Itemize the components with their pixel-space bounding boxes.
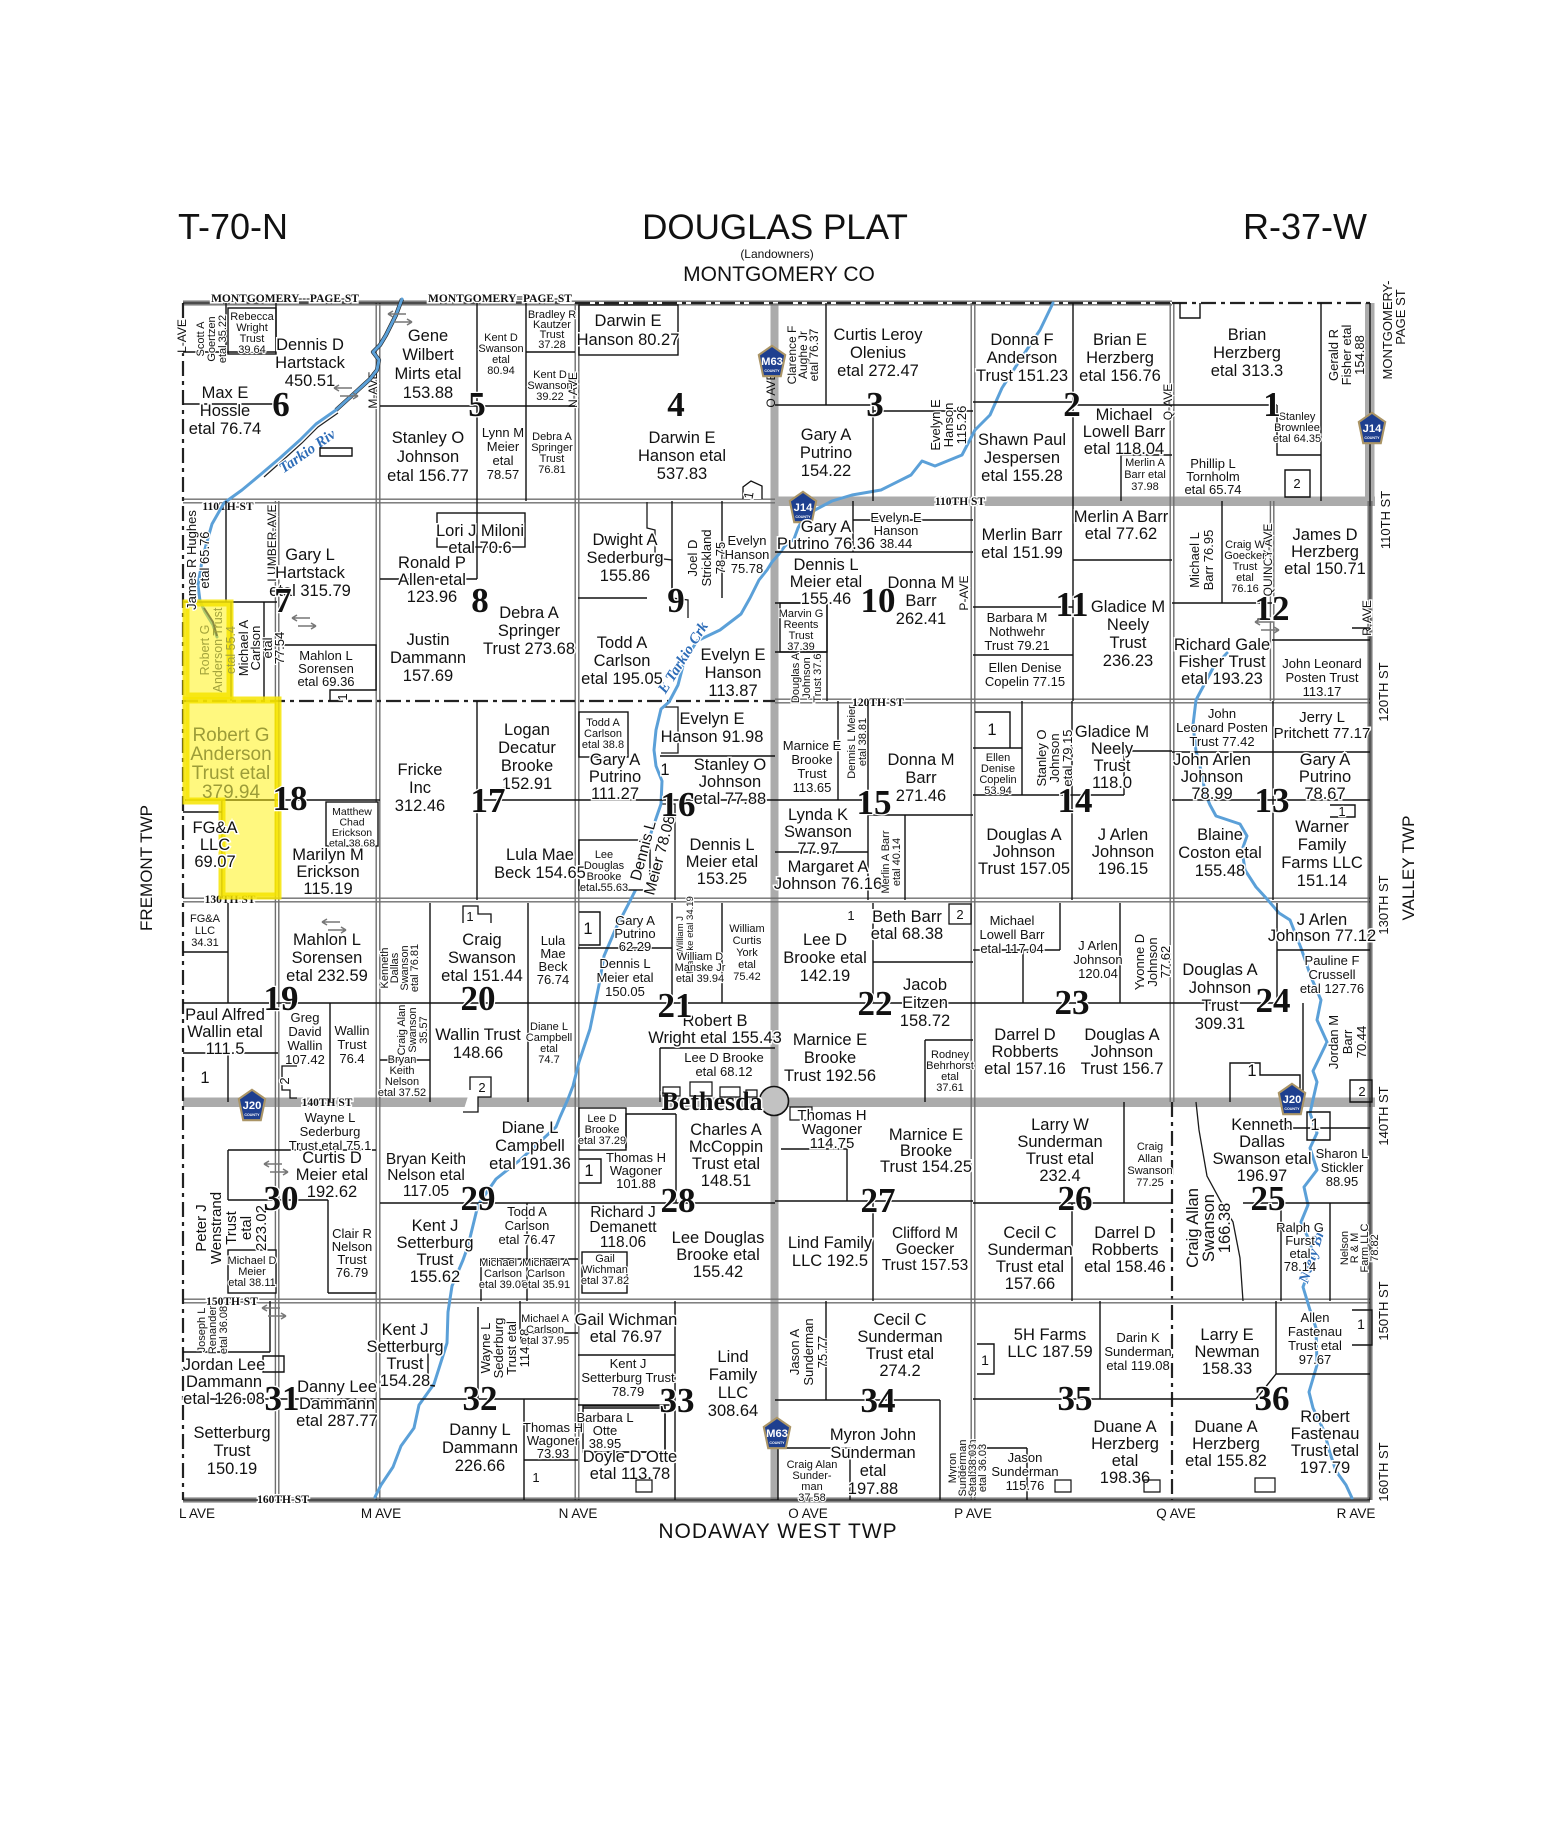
svg-text:24: 24 (1256, 981, 1291, 1020)
svg-text:J14: J14 (794, 502, 813, 514)
svg-text:MONTGOMERY=PAGE-ST: MONTGOMERY=PAGE-ST (428, 293, 572, 305)
svg-text:22: 22 (858, 984, 893, 1023)
svg-text:Stanley OJohnsonetal 156.77: Stanley OJohnsonetal 156.77 (387, 429, 469, 485)
svg-text:3: 3 (866, 385, 884, 424)
svg-text:J ArlenJohnson196.15: J ArlenJohnson196.15 (1092, 826, 1154, 878)
svg-text:LulaMaeBeck76.74: LulaMaeBeck76.74 (537, 933, 570, 987)
svg-text:30: 30 (264, 1179, 299, 1218)
svg-text:Gary APutrino78.67: Gary APutrino78.67 (1299, 751, 1351, 803)
svg-text:Pauline FCrusselletal 127.76: Pauline FCrusselletal 127.76 (1300, 953, 1364, 996)
svg-text:MONTGOMERY---PAGE-ST: MONTGOMERY---PAGE-ST (211, 293, 359, 305)
svg-text:COUNTY: COUNTY (244, 1113, 260, 1117)
svg-text:Scott AGoertzenetal 35.22: Scott AGoertzenetal 35.22 (195, 315, 229, 363)
svg-text:1: 1 (1247, 1062, 1256, 1080)
svg-text:Gail Wichmanetal 76.97: Gail Wichmanetal 76.97 (575, 1311, 678, 1346)
svg-text:J20: J20 (243, 1100, 262, 1112)
svg-text:COUNTY: COUNTY (1284, 1107, 1300, 1111)
svg-text:2: 2 (1358, 1084, 1365, 1099)
svg-text:140TH ST: 140TH ST (1376, 1086, 1391, 1145)
svg-text:Lori J Milonietal 70.6: Lori J Milonietal 70.6 (436, 522, 524, 557)
svg-text:1: 1 (466, 909, 473, 924)
svg-text:FREMONT TWP: FREMONT TWP (137, 805, 156, 931)
svg-text:1: 1 (532, 1470, 539, 1485)
svg-text:140TH ST: 140TH ST (302, 1097, 353, 1109)
svg-text:Sundermanetal 38.03: Sundermanetal 38.03 (957, 1440, 979, 1497)
svg-text:1: 1 (1357, 1316, 1365, 1332)
svg-text:Robert GAndersonTrust etal379.: Robert GAndersonTrust etal379.94 (190, 725, 271, 803)
svg-text:14: 14 (1058, 781, 1093, 820)
svg-text:Merlin Barretal 151.99: Merlin Barretal 151.99 (981, 526, 1063, 562)
svg-text:2: 2 (277, 1077, 292, 1084)
svg-text:1: 1 (1310, 1116, 1319, 1134)
svg-text:Ronald PAllen etal123.96: Ronald PAllen etal123.96 (398, 554, 466, 606)
svg-text:7: 7 (274, 581, 292, 620)
svg-text:110TH ST: 110TH ST (935, 496, 986, 508)
svg-text:Duane AHerzbergetal 155.82: Duane AHerzbergetal 155.82 (1185, 1418, 1267, 1470)
svg-text:160TH-ST: 160TH-ST (257, 1494, 309, 1506)
svg-text:Joseph LRenanderetal 36.08: Joseph LRenanderetal 36.08 (196, 1306, 230, 1355)
svg-text:36: 36 (1255, 1379, 1290, 1418)
svg-text:1: 1 (987, 721, 996, 739)
svg-text:MatthewChadEricksonetal 38.68: MatthewChadEricksonetal 38.68 (329, 806, 375, 850)
svg-text:COUNTY: COUNTY (769, 1441, 785, 1445)
svg-text:1: 1 (981, 1352, 989, 1368)
svg-text:Duane AHerzbergetal198.36: Duane AHerzbergetal198.36 (1091, 1418, 1159, 1487)
svg-text:Phillip LTornholmetal 65.74: Phillip LTornholmetal 65.74 (1184, 456, 1241, 497)
svg-text:Douglas AJohnsonTrust 156.7: Douglas AJohnsonTrust 156.7 (1081, 1026, 1164, 1078)
svg-text:P AVE: P AVE (954, 1506, 992, 1521)
svg-text:MONTGOMERY CO: MONTGOMERY CO (683, 263, 875, 286)
svg-text:Michael ACarlsonetal 35.91: Michael ACarlsonetal 35.91 (522, 1257, 571, 1291)
svg-text:Ellen DeniseCopelin 77.15: Ellen DeniseCopelin 77.15 (985, 660, 1065, 689)
svg-text:RobertFastenauTrust etal197.79: RobertFastenauTrust etal197.79 (1291, 1408, 1360, 1477)
svg-text:Richard GaleFisher Trustetal 1: Richard GaleFisher Trustetal 193.23 (1174, 636, 1270, 688)
svg-text:Q AVE: Q AVE (1156, 1506, 1196, 1521)
svg-text:COUNTY: COUNTY (764, 369, 780, 373)
svg-text:Michael ACarlsonetal 37.95: Michael ACarlsonetal 37.95 (521, 1313, 570, 1347)
svg-text:4: 4 (667, 385, 685, 424)
svg-text:R AVE: R AVE (1337, 1506, 1376, 1521)
svg-text:J ArlenJohnson120.04: J ArlenJohnson120.04 (1073, 938, 1122, 981)
svg-text:1: 1 (1338, 804, 1345, 819)
svg-text:110TH ST: 110TH ST (1378, 491, 1393, 549)
svg-text:34: 34 (861, 1381, 896, 1420)
svg-text:GregDavidWallin107.42: GregDavidWallin107.42 (285, 1010, 325, 1067)
svg-text:160TH ST: 160TH ST (1376, 1442, 1391, 1501)
svg-text:James DHerzbergetal 150.71: James DHerzbergetal 150.71 (1284, 526, 1366, 578)
svg-text:L-AVE: L-AVE (175, 319, 189, 353)
svg-text:J20: J20 (1283, 1094, 1302, 1106)
svg-text:1: 1 (660, 761, 669, 779)
svg-text:1: 1 (584, 1162, 593, 1180)
svg-text:2: 2 (1293, 476, 1300, 491)
svg-text:Lula MaeBeck 154.65: Lula MaeBeck 154.65 (494, 846, 586, 882)
svg-text:Shawn PaulJespersenetal 155.28: Shawn PaulJespersenetal 155.28 (978, 431, 1066, 485)
svg-text:15: 15 (857, 783, 892, 822)
svg-text:EvelynHanson75.78: EvelynHanson75.78 (725, 533, 770, 576)
svg-text:Jordan LeeDammannetal 126.08: Jordan LeeDammannetal 126.08 (183, 1356, 266, 1408)
svg-text:R-AVE: R-AVE (1360, 600, 1374, 636)
svg-text:Lee D Brookeetal 68.12: Lee D Brookeetal 68.12 (684, 1050, 764, 1079)
svg-text:LoganDecaturBrooke152.91: LoganDecaturBrooke152.91 (498, 721, 556, 793)
svg-text:DOUGLAS PLAT: DOUGLAS PLAT (642, 208, 908, 247)
svg-text:1: 1 (200, 1069, 209, 1087)
svg-text:Clair RNelsonTrust76.79: Clair RNelsonTrust76.79 (332, 1226, 372, 1280)
svg-text:16: 16 (661, 785, 696, 824)
svg-text:Clarence FAughe Jretal 76.37: Clarence FAughe Jretal 76.37 (785, 326, 821, 385)
svg-text:J14: J14 (1363, 423, 1382, 435)
svg-text:150TH ST: 150TH ST (1376, 1281, 1391, 1340)
svg-text:JacobEitzen158.72: JacobEitzen158.72 (900, 976, 950, 1030)
svg-text:Lind FamilyLLC 192.5: Lind FamilyLLC 192.5 (788, 1234, 873, 1270)
svg-text:N AVE: N AVE (559, 1506, 598, 1521)
svg-text:120TH-ST: 120TH-ST (852, 697, 904, 709)
svg-text:27: 27 (861, 1181, 896, 1220)
svg-text:Margaret AJohnson 76.16: Margaret AJohnson 76.16 (774, 858, 882, 893)
svg-text:NODAWAY WEST TWP: NODAWAY WEST TWP (658, 1520, 897, 1543)
svg-text:Todd ACarlsonetal 38.8: Todd ACarlsonetal 38.8 (582, 717, 624, 751)
svg-text:1: 1 (847, 908, 854, 923)
svg-text:10: 10 (861, 581, 896, 620)
svg-text:11: 11 (1055, 585, 1088, 624)
svg-text:6: 6 (272, 385, 290, 424)
svg-text:Gary APutrino111.27: Gary APutrino111.27 (589, 751, 641, 803)
svg-text:2: 2 (956, 907, 963, 922)
svg-text:Danny LeeDammannetal 287.77: Danny LeeDammannetal 287.77 (296, 1378, 378, 1430)
svg-text:Michael LBarr 76.95: Michael LBarr 76.95 (1187, 530, 1216, 591)
svg-text:VALLEY TWP: VALLEY TWP (1399, 816, 1418, 921)
svg-text:21: 21 (658, 986, 693, 1025)
svg-text:33: 33 (660, 1381, 695, 1420)
svg-text:29: 29 (461, 1179, 496, 1218)
svg-text:Stanley OJohnsonetal 77.88: Stanley OJohnsonetal 77.88 (694, 756, 767, 808)
svg-text:Evelyn EHanson113.87: Evelyn EHanson113.87 (700, 646, 765, 700)
svg-text:O AVE: O AVE (788, 1506, 828, 1521)
svg-text:COUNTY: COUNTY (1364, 436, 1380, 440)
svg-text:13: 13 (1255, 781, 1290, 820)
svg-text:9: 9 (667, 581, 685, 620)
svg-text:P-AVE: P-AVE (957, 575, 971, 610)
svg-text:Barbara MNothwehrTrust 79.21: Barbara MNothwehrTrust 79.21 (984, 610, 1049, 653)
svg-text:25: 25 (1251, 1179, 1286, 1218)
svg-text:28: 28 (661, 1181, 696, 1220)
svg-text:17: 17 (471, 781, 506, 820)
svg-text:R-37-W: R-37-W (1243, 206, 1367, 247)
svg-text:L AVE: L AVE (179, 1506, 215, 1521)
svg-text:Lynn MMeieretal78.57: Lynn MMeieretal78.57 (482, 425, 524, 482)
svg-text:Dennis DHartstack450.51: Dennis DHartstack450.51 (275, 336, 345, 390)
svg-text:120TH ST: 120TH ST (1376, 662, 1391, 721)
svg-text:8: 8 (471, 581, 489, 620)
svg-text:Merlin A Barretal 77.62: Merlin A Barretal 77.62 (1074, 508, 1169, 543)
svg-text:Darrel DRobbertsetal 157.16: Darrel DRobbertsetal 157.16 (984, 1026, 1066, 1078)
svg-text:Michael ACarlsonetal 39.05: Michael ACarlsonetal 39.05 (479, 1257, 528, 1291)
svg-text:Darrel DRobbertsetal 158.46: Darrel DRobbertsetal 158.46 (1084, 1224, 1166, 1276)
svg-text:M63: M63 (766, 1428, 788, 1440)
svg-text:Mahlon LSorensenetal 232.59: Mahlon LSorensenetal 232.59 (286, 931, 368, 985)
svg-text:1: 1 (583, 920, 592, 938)
svg-text:O AVE: O AVE (764, 372, 778, 407)
svg-text:5H FarmsLLC 187.59: 5H FarmsLLC 187.59 (1007, 1326, 1092, 1361)
svg-text:Merlin A Barretal 40.14: Merlin A Barretal 40.14 (880, 830, 903, 893)
svg-text:32: 32 (463, 1379, 498, 1418)
svg-text:M63: M63 (761, 356, 783, 368)
svg-text:Stanley OJohnsonetal 79.15: Stanley OJohnsonetal 79.15 (1034, 729, 1075, 786)
svg-text:Larry ENewman158.33: Larry ENewman158.33 (1194, 1326, 1259, 1378)
svg-text:1: 1 (335, 693, 350, 700)
svg-text:Mahlon LSorensenetal 69.36: Mahlon LSorensenetal 69.36 (297, 648, 354, 689)
svg-text:20: 20 (461, 979, 496, 1018)
svg-text:130TH ST: 130TH ST (1376, 875, 1391, 934)
svg-text:M AVE: M AVE (361, 1506, 401, 1521)
svg-text:Gary APutrino62.29: Gary APutrino62.29 (614, 913, 655, 954)
svg-text:5: 5 (468, 385, 486, 424)
svg-text:Doyle D Otteetal 113.78: Doyle D Otteetal 113.78 (583, 1448, 677, 1483)
svg-text:Gary APutrino154.22: Gary APutrino154.22 (800, 426, 852, 480)
svg-text:William DManske Jretal 39.94: William DManske Jretal 39.94 (675, 951, 726, 985)
svg-text:Douglas AJohnsonTrust 37.6: Douglas AJohnsonTrust 37.6 (790, 652, 824, 703)
svg-text:2: 2 (1063, 385, 1081, 424)
svg-text:Evelyn EHanson115.26: Evelyn EHanson115.26 (928, 399, 969, 451)
svg-text:18: 18 (273, 779, 308, 818)
svg-text:(Landowners): (Landowners) (740, 247, 813, 261)
svg-text:1: 1 (1263, 385, 1281, 424)
svg-text:31: 31 (265, 1379, 300, 1418)
svg-text:T-70-N: T-70-N (178, 206, 288, 247)
svg-text:WallinTrust76.4: WallinTrust76.4 (335, 1023, 370, 1066)
svg-text:26: 26 (1058, 1179, 1093, 1218)
svg-text:2: 2 (478, 1080, 485, 1095)
svg-text:35: 35 (1058, 1379, 1093, 1418)
svg-text:23: 23 (1055, 983, 1090, 1022)
svg-text:Q-AVE: Q-AVE (1161, 384, 1175, 420)
svg-text:110TH-ST: 110TH-ST (202, 501, 253, 513)
svg-text:Beth Barretal 68.38: Beth Barretal 68.38 (871, 908, 943, 943)
svg-text:19: 19 (264, 979, 299, 1018)
svg-text:KennethDallasSwansonetal 76.81: KennethDallasSwansonetal 76.81 (379, 944, 421, 992)
